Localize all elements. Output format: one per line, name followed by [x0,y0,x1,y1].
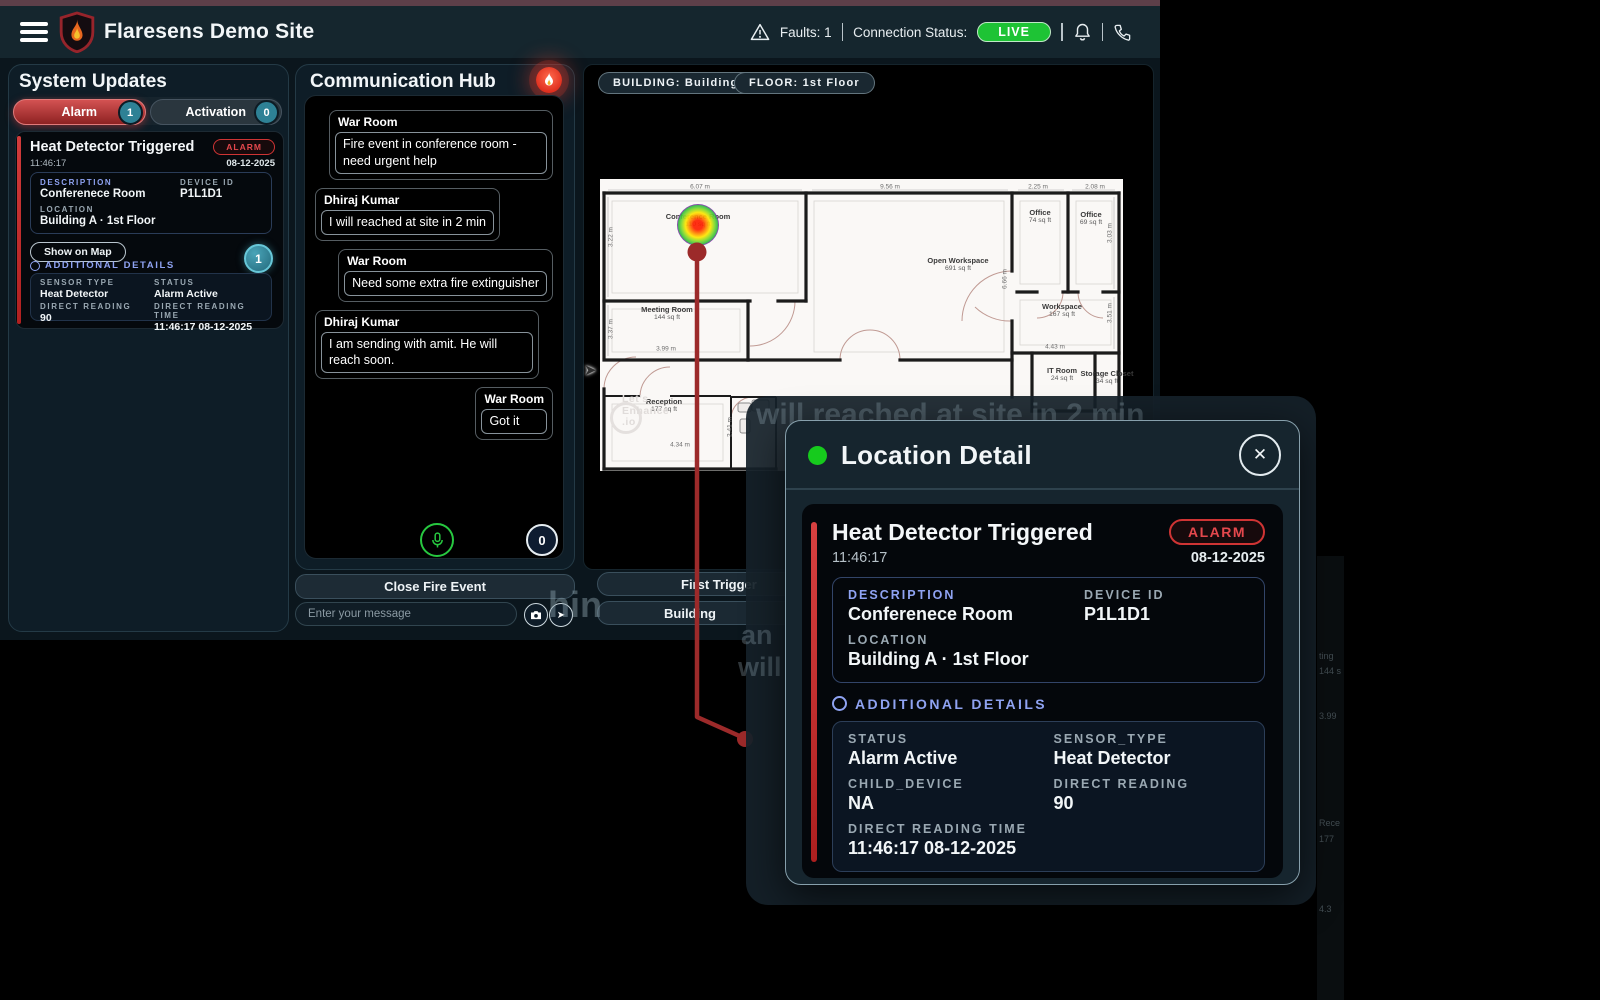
dimension-label: 3.03 m [1107,223,1114,243]
additional-details-label: ADDITIONAL DETAILS [45,260,175,271]
chat-bubble: I am sending with amit. He will reach so… [321,332,533,374]
divider [1102,23,1104,41]
detail-field: STATUSAlarm Active [154,278,262,300]
status-green-dot-icon [808,446,827,465]
close-fire-event-button[interactable]: Close Fire Event [295,574,575,599]
chat-message: Dhiraj KumarI am sending with amit. He w… [315,310,539,380]
location-label: LOCATION [848,633,1249,647]
tab-alarm-badge: 1 [118,100,143,125]
ghost-fragment: ting [1319,651,1334,661]
detail-description-box: DESCRIPTION Conferenece Room DEVICE ID P… [832,577,1265,683]
chat-message: War RoomGot it [475,387,553,440]
camera-button[interactable] [524,603,548,627]
tab-activation-label: Activation [186,105,246,119]
tab-alarm-label: Alarm [62,105,97,119]
dimension-label: 6.07 m [690,184,710,191]
chat-bubble: Fire event in conference room - need urg… [335,132,547,174]
ghost-fragment: Rece [1319,818,1340,828]
detail-field: DIRECT READING90 [40,302,148,333]
device-id-label: DEVICE ID [180,178,262,187]
room-label: IT Room24 sq ft [1047,366,1077,384]
tab-activation-badge: 0 [254,100,279,125]
device-id-value: P1L1D1 [180,188,262,200]
close-icon[interactable]: ✕ [1239,434,1281,476]
detail-field: DIRECT READING TIME11:46:17 08-12-2025 [848,822,1249,859]
detail-field: SENSOR_TYPEHeat Detector [1054,732,1250,769]
alarm-status-badge: ALARM [1169,519,1265,545]
room-label: Meeting Room144 sq ft [641,305,693,323]
entrance-arrow-icon: ➤ [584,361,597,379]
dimension-label: 6.66 m [1002,269,1009,289]
location-value: Building A · 1st Floor [40,215,262,227]
dimension-label: 9.56 m [880,184,900,191]
description-label: DESCRIPTION [848,588,1084,602]
description-label: DESCRIPTION [40,178,180,187]
phone-icon[interactable] [1113,23,1132,42]
chat-sender: Dhiraj Kumar [321,192,494,210]
divider [842,23,844,41]
ring-icon [30,261,40,271]
divider [786,488,1299,490]
app-header: Flaresens Demo Site Faults: 1 Connection… [0,6,1160,58]
flaresens-logo-shield-flame-icon [58,11,96,53]
detail-date: 08-12-2025 [1191,550,1265,566]
device-id-value: P1L1D1 [1084,604,1249,625]
dimension-label: 2.08 m [1085,184,1105,191]
location-label: LOCATION [40,205,262,214]
communication-hub-panel: Communication Hub War RoomFire event in … [295,64,575,570]
chat-message: War RoomNeed some extra fire extinguishe… [338,249,553,302]
alarm-additional-details-box: SENSOR TYPEHeat DetectorSTATUSAlarm Acti… [30,273,272,321]
ghost-fragment: 144 s [1319,666,1341,676]
menu-icon[interactable] [20,22,48,42]
ghost-text: will [738,652,782,683]
additional-details-header: ADDITIONAL DETAILS [832,696,1265,712]
room-label: Open Workspace691 sq ft [927,256,988,274]
show-on-map-button[interactable]: Show on Map [30,242,126,262]
app-title: Flaresens Demo Site [104,20,314,44]
dimension-label: 3.99 m [656,346,676,353]
detail-time: 11:46:17 [832,550,887,566]
detail-field: SENSOR TYPEHeat Detector [40,278,148,300]
room-label: Office74 sq ft [1029,208,1051,226]
ring-icon [832,696,847,711]
recording-count-badge: 0 [526,524,558,556]
dimension-label: 3.22 m [608,227,615,247]
alarm-severity-bar [17,136,21,324]
dimension-label: 2.25 m [1028,184,1048,191]
ghost-fragment: 4.3 [1319,904,1332,914]
detail-field: CHILD_DEVICENA [848,777,1044,814]
detail-field: DIRECT READING90 [1054,777,1250,814]
tab-alarm[interactable]: Alarm 1 [13,99,146,125]
dimension-label: 4.43 m [1045,344,1065,351]
additional-details-header: ADDITIONAL DETAILS [30,260,175,271]
faults-status: Faults: 1 [780,25,832,40]
detail-field: DIRECT READING TIME11:46:17 08-12-2025 [154,302,262,333]
dimension-label: 3.51 m [1107,303,1114,323]
ghost-map-strip: ting144 s3.99Rece1774.3 [1317,556,1344,1000]
room-label: Storage Closet34 sq ft [1081,369,1134,387]
system-updates-tabs: Alarm 1 Activation 0 [13,97,282,125]
chat-message: Dhiraj KumarI will reached at site in 2 … [315,188,500,241]
alarm-severity-bar [811,522,817,862]
chat-message-list: War RoomFire event in conference room - … [304,95,564,559]
live-badge: LIVE [977,22,1051,42]
chat-sender: War Room [344,253,547,271]
popup-header: Location Detail ✕ [786,421,1299,486]
chat-sender: War Room [481,391,547,409]
alarm-date: 08-12-2025 [226,158,275,169]
popup-title: Location Detail [841,440,1032,471]
chat-bubble: Need some extra fire extinguisher [344,271,547,296]
faults-warning-icon [750,23,770,41]
connection-status-label: Connection Status: [853,25,967,40]
location-detail-card: Heat Detector Triggered ALARM 11:46:17 0… [802,504,1283,878]
detail-title: Heat Detector Triggered [832,519,1093,546]
chat-sender: War Room [335,114,547,132]
alarm-card[interactable]: Heat Detector Triggered ALARM 11:46:17 0… [15,131,284,329]
fire-event-icon [536,67,562,93]
watermark-line: .io [622,417,669,429]
ghost-text: hin [548,584,602,626]
location-detail-popup: Location Detail ✕ Heat Detector Triggere… [785,420,1300,885]
ghost-fragment: 177 [1319,834,1334,844]
tab-activation[interactable]: Activation 0 [150,99,283,125]
system-updates-panel: System Updates Alarm 1 Activation 0 Heat… [8,64,289,632]
chat-sender: Dhiraj Kumar [321,314,533,332]
alarm-card-title: Heat Detector Triggered [30,139,194,155]
alarm-time: 11:46:17 [30,158,66,169]
location-value: Building A · 1st Floor [848,649,1249,670]
message-input[interactable] [295,602,517,626]
system-updates-title: System Updates [19,71,167,93]
dimension-label: 3.37 m [608,319,615,339]
chat-bubble: I will reached at site in 2 min [321,210,494,235]
dimension-label: 4.34 m [670,442,690,449]
alarm-count-badge: 1 [244,244,273,273]
alarm-description-box: DESCRIPTION Conferenece Room DEVICE ID P… [30,172,272,234]
notifications-bell-icon[interactable] [1073,22,1092,42]
dimension-label: 2.41 m [727,417,734,437]
description-value: Conferenece Room [40,188,180,200]
device-id-label: DEVICE ID [1084,588,1249,602]
chat-message: War RoomFire event in conference room - … [329,110,553,180]
description-value: Conferenece Room [848,604,1084,625]
microphone-button[interactable] [420,523,454,557]
ghost-text: an [741,620,773,651]
watermark: Let'sEnhance.io [622,394,669,429]
chat-bubble: Got it [481,409,547,434]
additional-details-label: ADDITIONAL DETAILS [855,696,1047,712]
room-label: Workspace167 sq ft [1042,302,1082,320]
communication-hub-title: Communication Hub [310,71,496,93]
alarm-status-badge: ALARM [213,139,275,155]
heat-alarm-map-marker[interactable] [677,204,719,246]
watermark-line: Let's [622,394,669,406]
floor-chip[interactable]: FLOOR: 1st Floor [734,72,875,94]
divider [1061,23,1063,41]
room-label: Office69 sq ft [1080,210,1102,228]
ghost-fragment: 3.99 [1319,711,1337,721]
detail-additional-details-box: STATUSAlarm ActiveSENSOR_TYPEHeat Detect… [832,721,1265,872]
detail-field: STATUSAlarm Active [848,732,1044,769]
screen: Flaresens Demo Site Faults: 1 Connection… [0,0,1600,1000]
